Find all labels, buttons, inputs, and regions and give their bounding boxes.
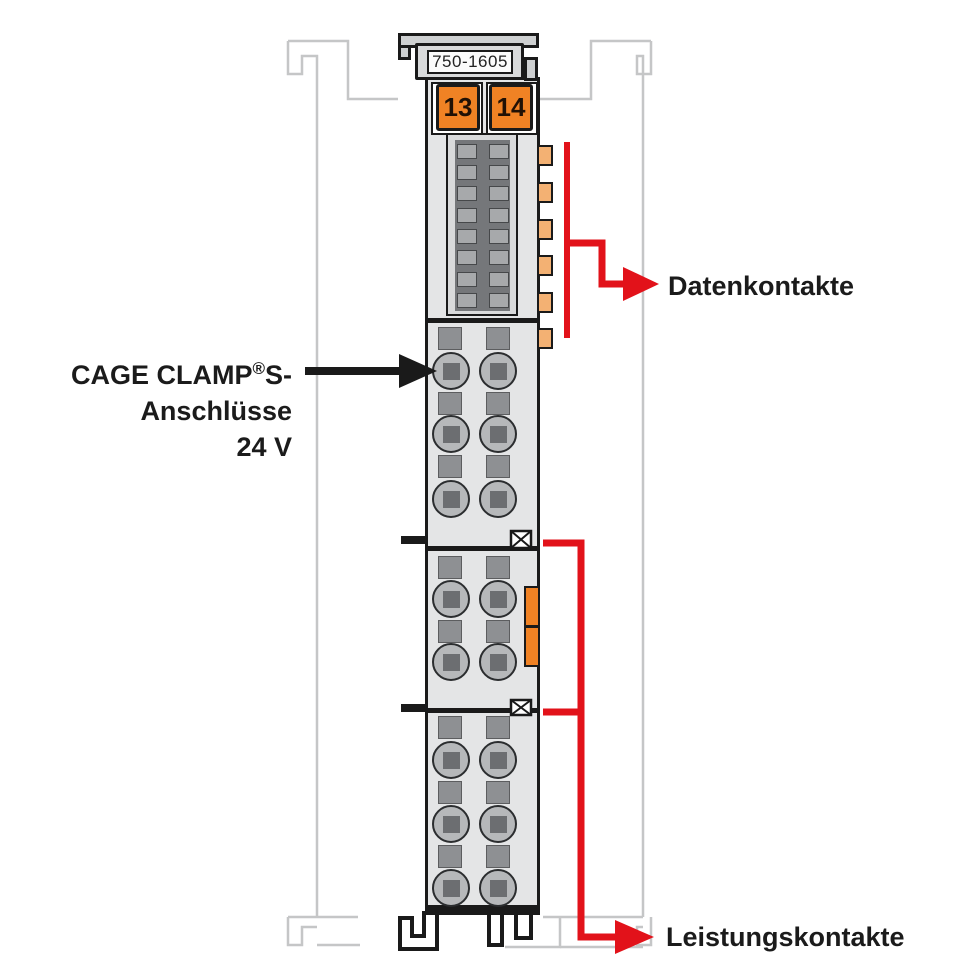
registered-mark: ® (252, 359, 265, 378)
cage-clamp-suffix: S- (265, 360, 292, 390)
cage-clamp-line1: CAGE CLAMP®S- (56, 351, 292, 393)
label-datenkontakte: Datenkontakte (668, 271, 854, 301)
cage-clamp-line3: 24 V (56, 429, 292, 465)
cage-clamp-line2: Anschlüsse (56, 393, 292, 429)
label-cage-clamp: CAGE CLAMP®S- Anschlüsse 24 V (56, 351, 292, 465)
diagram-canvas: 750-1605 13 14 (0, 0, 967, 968)
cage-clamp-text: CAGE CLAMP (71, 360, 253, 390)
label-leistungskontakte: Leistungskontakte (666, 922, 905, 952)
